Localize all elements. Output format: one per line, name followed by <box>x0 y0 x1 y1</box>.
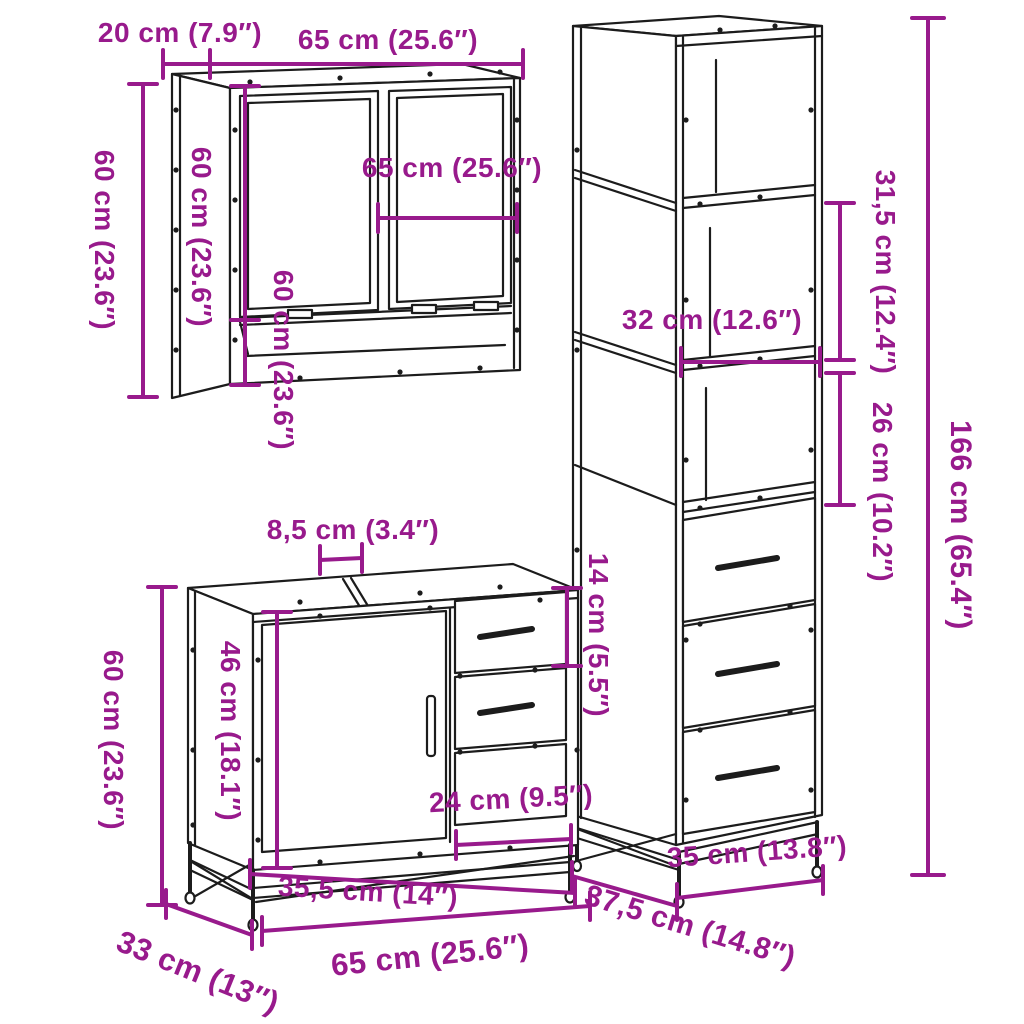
tall-shelf-width-label: 32 cm (12.6″) <box>622 306 802 334</box>
mirror-depth-label: 20 cm (7.9″) <box>98 19 262 47</box>
vanity-top-gap-label: 8,5 cm (3.4″) <box>267 516 439 544</box>
mirror-height-outer-label: 60 cm (23.6″) <box>90 150 118 330</box>
mirror-width-top-label: 65 cm (25.6″) <box>298 26 478 54</box>
vanity-height-label: 60 cm (23.6″) <box>99 650 127 830</box>
tall-middle-section-label: 26 cm (10.2″) <box>868 402 896 582</box>
mirror-cabinet-drawing <box>172 64 520 398</box>
vanity-drawer-height-label: 14 cm (5.5″) <box>584 553 612 717</box>
tall-top-section-label: 31,5 cm (12.4″) <box>871 170 899 375</box>
vanity-door-height-label: 46 cm (18.1″) <box>216 641 244 821</box>
mirror-width-inner-label: 65 cm (25.6″) <box>362 154 542 182</box>
tall-cabinet-drawing <box>573 16 822 908</box>
mirror-height-side-label: 60 cm (23.6″) <box>187 147 215 327</box>
mirror-height-inner-label: 60 cm (23.6″) <box>269 270 297 450</box>
dimension-diagram: 20 cm (7.9″) 65 cm (25.6″) 60 cm (23.6″)… <box>0 0 1024 1024</box>
tall-total-height-label: 166 cm (65.4″) <box>945 420 975 630</box>
